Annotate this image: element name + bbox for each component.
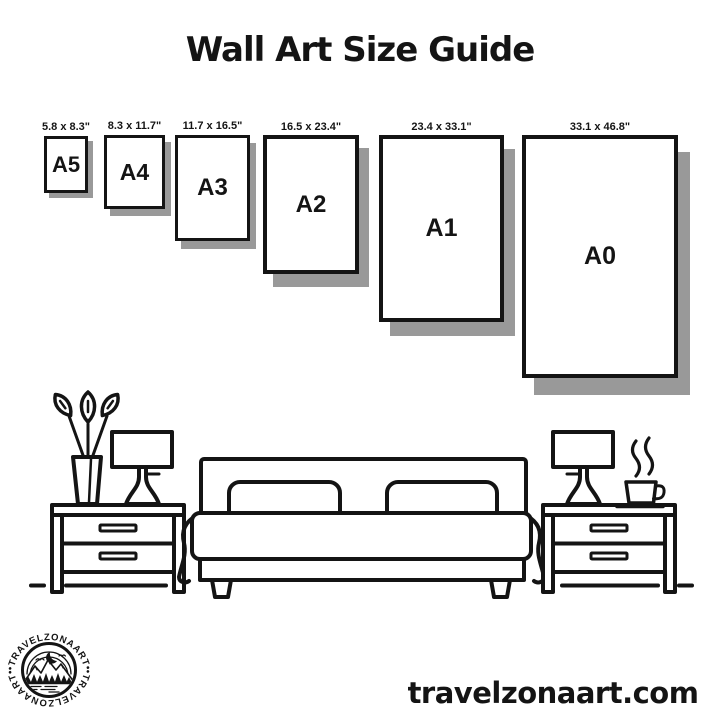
size-caption-a4: 8.3 x 11.7" — [108, 120, 162, 132]
table-lamp-right-icon — [553, 432, 613, 504]
size-label-a2: A2 — [296, 191, 327, 219]
brand-logo: • TRAVELZONAART • • TRAVELZONAART • — [2, 620, 96, 716]
steam-icon — [633, 438, 653, 476]
paper-frame-a3: 11.7 x 16.5" A3 — [175, 135, 250, 241]
bed-icon — [179, 459, 544, 597]
nightstand-right-icon — [543, 505, 675, 592]
paper-frame-a4: 8.3 x 11.7" A4 — [104, 135, 165, 209]
nightstand-left-icon — [52, 505, 184, 592]
paper-frame-a1: 23.4 x 33.1" A1 — [379, 135, 504, 322]
website-url: travelzonaart.com — [408, 676, 699, 710]
bedroom-scene — [0, 385, 720, 610]
size-label-a4: A4 — [120, 159, 149, 186]
paper-frame-a0: 33.1 x 46.8" A0 — [522, 135, 678, 378]
size-caption-a3: 11.7 x 16.5" — [183, 120, 243, 132]
paper-frame-a2: 16.5 x 23.4" A2 — [263, 135, 359, 274]
page-title: Wall Art Size Guide — [0, 30, 720, 70]
size-label-a1: A1 — [426, 214, 458, 243]
size-label-a5: A5 — [52, 152, 80, 178]
size-caption-a0: 33.1 x 46.8" — [570, 121, 630, 133]
paper-frame-a5: 5.8 x 8.3" A5 — [44, 136, 88, 193]
size-label-a0: A0 — [584, 242, 616, 271]
size-caption-a2: 16.5 x 23.4" — [281, 121, 341, 133]
bird-icon — [59, 655, 65, 656]
coffee-cup-icon — [617, 438, 664, 507]
table-lamp-left-icon — [112, 432, 172, 504]
size-caption-a5: 5.8 x 8.3" — [42, 121, 90, 133]
size-label-a3: A3 — [197, 174, 228, 202]
size-caption-a1: 23.4 x 33.1" — [411, 121, 471, 133]
